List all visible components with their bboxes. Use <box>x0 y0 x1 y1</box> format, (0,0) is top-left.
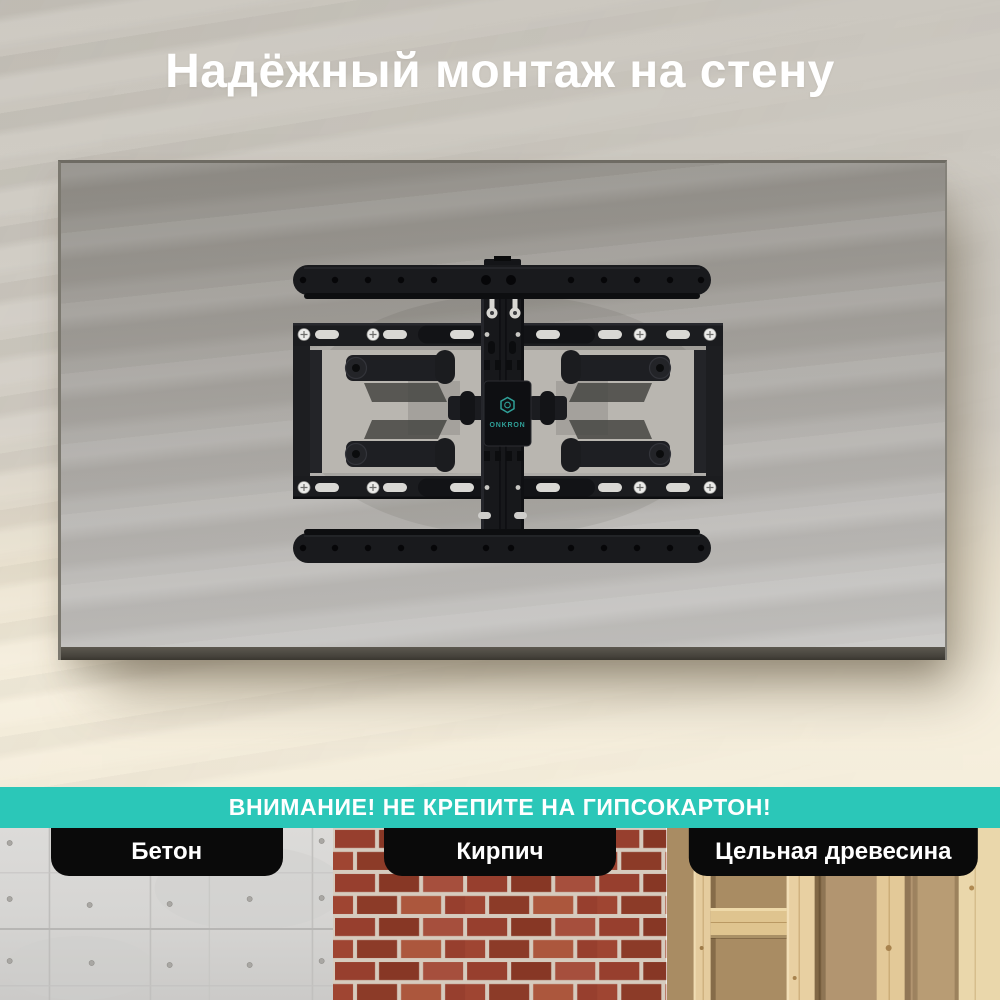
wall-mount-graphic: ONKRON <box>288 255 728 567</box>
mount-bottom-vesa-rail <box>293 529 711 563</box>
mount-top-vesa-rail <box>293 265 711 299</box>
material-panel-concrete: Бетон <box>0 828 333 1000</box>
materials-row: Бетон <box>0 828 1000 1000</box>
page-title: Надёжный монтаж на стену <box>0 44 1000 99</box>
material-label: Бетон <box>131 838 202 866</box>
hero-section: Надёжный монтаж на стену <box>0 0 1000 787</box>
product-marketing-image: Надёжный монтаж на стену <box>0 0 1000 1000</box>
material-panel-brick: Кирпич <box>333 828 666 1000</box>
material-label-pill: Бетон <box>51 828 283 876</box>
material-label-pill: Кирпич <box>384 828 616 876</box>
brand-logo-text: ONKRON <box>490 422 526 429</box>
material-label-pill: Цельная древесина <box>689 828 977 876</box>
tv-bottom-bezel <box>61 647 945 660</box>
warning-text: ВНИМАНИЕ! НЕ КРЕПИТЕ НА ГИПСОКАРТОН! <box>229 794 772 821</box>
warning-banner: ВНИМАНИЕ! НЕ КРЕПИТЕ НА ГИПСОКАРТОН! <box>0 787 1000 828</box>
tv-back-panel: ONKRON <box>58 160 947 660</box>
material-label: Цельная древесина <box>715 838 951 866</box>
material-panel-wood: Цельная древесина <box>667 828 1000 1000</box>
material-label: Кирпич <box>456 838 543 866</box>
